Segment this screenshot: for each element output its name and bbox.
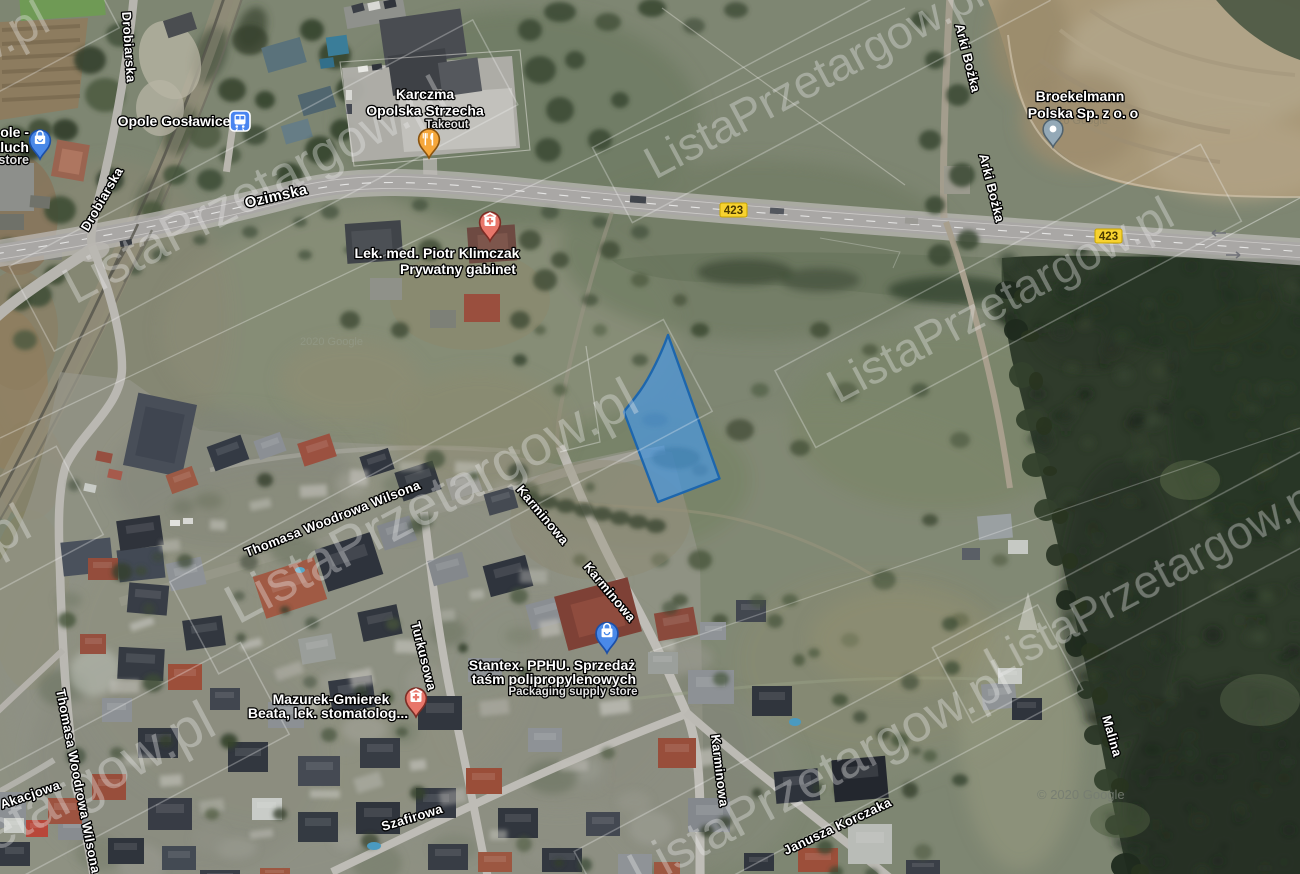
svg-text:Broekelmann: Broekelmann — [1036, 88, 1125, 104]
svg-text:Prywatny gabinet: Prywatny gabinet — [400, 261, 516, 277]
svg-text:Lek. med. Piotr Klimczak: Lek. med. Piotr Klimczak — [355, 245, 520, 261]
svg-text:ole -: ole - — [0, 124, 29, 140]
svg-text:store: store — [0, 153, 29, 167]
svg-text:Polska Sp. z o. o: Polska Sp. z o. o — [1028, 105, 1138, 121]
svg-text:423: 423 — [724, 205, 743, 217]
svg-text:Beata, lek. stomatolog...: Beata, lek. stomatolog... — [248, 705, 408, 721]
svg-text:© 2020 Google: © 2020 Google — [1037, 787, 1125, 802]
svg-text:taśm polipropylenowych: taśm polipropylenowych — [472, 671, 636, 687]
svg-text:Packaging supply store: Packaging supply store — [508, 686, 637, 698]
svg-text:2020 Google: 2020 Google — [300, 336, 363, 348]
svg-text:Karczma: Karczma — [396, 86, 455, 102]
svg-text:Opolska Strzecha: Opolska Strzecha — [366, 103, 484, 119]
svg-text:Opole Gosławice: Opole Gosławice — [118, 113, 231, 129]
svg-text:423: 423 — [1099, 231, 1118, 243]
